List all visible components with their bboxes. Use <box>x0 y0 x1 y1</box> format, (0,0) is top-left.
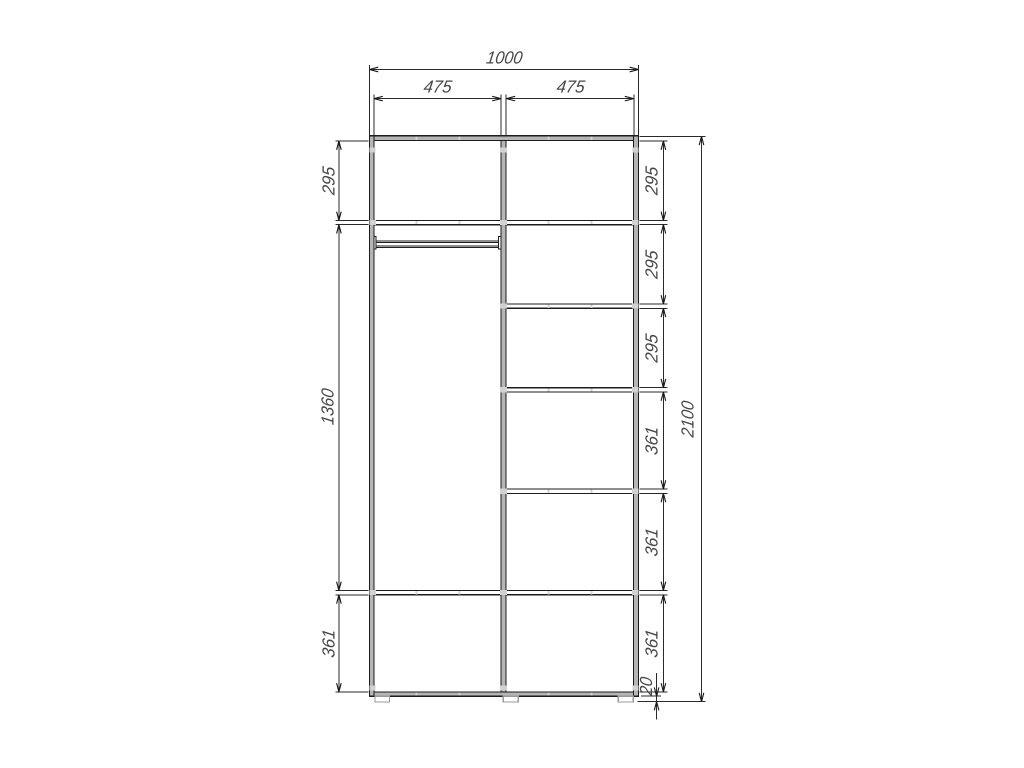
svg-text:20: 20 <box>636 675 656 697</box>
svg-text:1000: 1000 <box>485 48 524 68</box>
svg-text:295: 295 <box>642 249 662 281</box>
svg-text:361: 361 <box>642 425 662 456</box>
svg-text:361: 361 <box>318 628 338 659</box>
svg-text:295: 295 <box>318 165 338 197</box>
svg-text:2100: 2100 <box>678 399 698 439</box>
svg-text:475: 475 <box>555 76 586 96</box>
svg-text:295: 295 <box>642 165 662 197</box>
svg-text:475: 475 <box>422 76 453 96</box>
svg-text:361: 361 <box>642 527 662 558</box>
svg-text:1360: 1360 <box>318 387 338 426</box>
svg-text:295: 295 <box>642 332 662 364</box>
svg-text:361: 361 <box>642 628 662 659</box>
